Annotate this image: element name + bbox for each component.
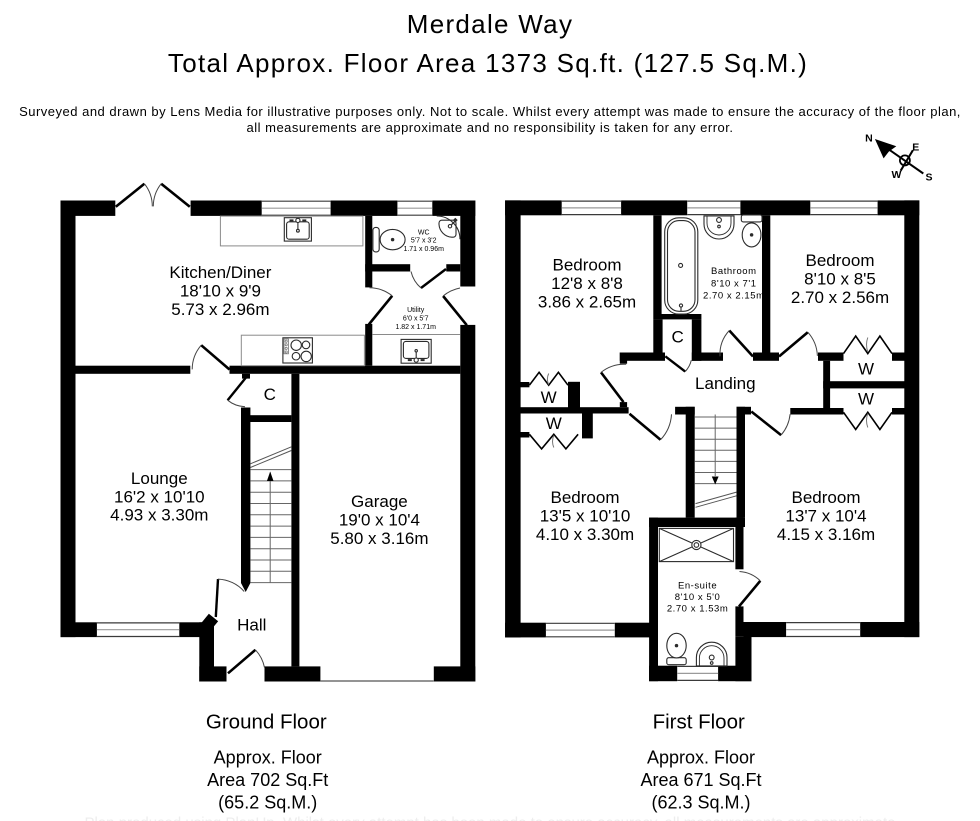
svg-text:1.82 x 1.71m: 1.82 x 1.71m (395, 324, 436, 331)
svg-text:16'2 x 10'10: 16'2 x 10'10 (114, 487, 205, 506)
svg-text:Hall: Hall (237, 616, 266, 635)
svg-text:5.80 x 3.16m: 5.80 x 3.16m (330, 529, 428, 548)
svg-text:N: N (865, 133, 873, 145)
svg-text:Bedroom: Bedroom (806, 251, 875, 270)
svg-text:Area 702 Sq.Ft: Area 702 Sq.Ft (207, 770, 328, 790)
svg-text:W: W (541, 388, 557, 407)
svg-text:First Floor: First Floor (653, 711, 745, 734)
svg-text:Approx. Floor: Approx. Floor (214, 747, 322, 767)
svg-text:Bedroom: Bedroom (553, 256, 622, 275)
svg-text:8'10 x 8'5: 8'10 x 8'5 (804, 269, 876, 288)
svg-text:Approx. Floor: Approx. Floor (647, 747, 755, 767)
svg-text:En-suite: En-suite (678, 581, 717, 592)
svg-text:Kitchen/Diner: Kitchen/Diner (169, 263, 271, 282)
svg-text:Merdale Way: Merdale Way (407, 9, 574, 39)
svg-text:2.70 x 2.15m: 2.70 x 2.15m (703, 291, 765, 302)
svg-text:5'7 x 3'2: 5'7 x 3'2 (411, 238, 437, 245)
svg-text:12'8 x 8'8: 12'8 x 8'8 (551, 274, 623, 293)
svg-text:4.93 x 3.30m: 4.93 x 3.30m (110, 506, 208, 525)
svg-text:4.10 x 3.30m: 4.10 x 3.30m (536, 525, 634, 544)
svg-text:Lounge: Lounge (131, 469, 188, 488)
svg-text:Area 671 Sq.Ft: Area 671 Sq.Ft (640, 770, 761, 790)
svg-text:C: C (264, 385, 276, 404)
svg-text:W: W (858, 390, 874, 409)
svg-text:2.70 x 2.56m: 2.70 x 2.56m (791, 288, 889, 307)
svg-text:6'0 x 5'7: 6'0 x 5'7 (403, 316, 429, 323)
svg-text:Bedroom: Bedroom (551, 488, 620, 507)
svg-text:19'0 x 10'4: 19'0 x 10'4 (339, 511, 420, 530)
svg-text:W: W (858, 360, 874, 379)
svg-text:W: W (546, 414, 562, 433)
svg-text:(62.3 Sq.M.): (62.3 Sq.M.) (651, 792, 750, 812)
svg-text:5.73 x 2.96m: 5.73 x 2.96m (171, 300, 269, 319)
svg-text:2.70 x 1.53m: 2.70 x 1.53m (667, 604, 729, 615)
svg-text:WC: WC (418, 229, 430, 236)
svg-text:Ground Floor: Ground Floor (206, 711, 327, 734)
svg-text:8'10 x 7'1: 8'10 x 7'1 (711, 278, 757, 289)
svg-text:S: S (925, 172, 932, 184)
svg-text:Surveyed and drawn by Lens Med: Surveyed and drawn by Lens Media for ill… (19, 104, 961, 119)
svg-text:8'10 x 5'0: 8'10 x 5'0 (675, 592, 721, 603)
svg-text:(65.2 Sq.M.): (65.2 Sq.M.) (218, 792, 317, 812)
svg-text:1.71 x 0.96m: 1.71 x 0.96m (403, 246, 444, 253)
svg-text:Bathroom: Bathroom (711, 266, 757, 277)
svg-text:Bedroom: Bedroom (792, 488, 861, 507)
svg-text:Total Approx. Floor Area 1373: Total Approx. Floor Area 1373 Sq.ft. (12… (168, 48, 808, 78)
svg-text:13'5 x 10'10: 13'5 x 10'10 (540, 507, 631, 526)
svg-text:3.86 x 2.65m: 3.86 x 2.65m (538, 293, 636, 312)
svg-text:Plan produced using PlanUp. W: Plan produced using PlanUp. Whilst every… (85, 815, 896, 821)
svg-text:Utility: Utility (407, 307, 425, 314)
svg-text:Garage: Garage (351, 492, 408, 511)
svg-text:18'10 x 9'9: 18'10 x 9'9 (180, 282, 261, 301)
svg-text:Landing: Landing (695, 374, 756, 393)
svg-text:4.15 x 3.16m: 4.15 x 3.16m (777, 525, 875, 544)
svg-text:E: E (912, 142, 919, 154)
svg-text:13'7 x 10'4: 13'7 x 10'4 (785, 507, 866, 526)
svg-text:C: C (671, 328, 683, 347)
svg-text:W: W (891, 169, 901, 181)
svg-text:all measurements are approxima: all measurements are approximate and no … (247, 120, 734, 135)
